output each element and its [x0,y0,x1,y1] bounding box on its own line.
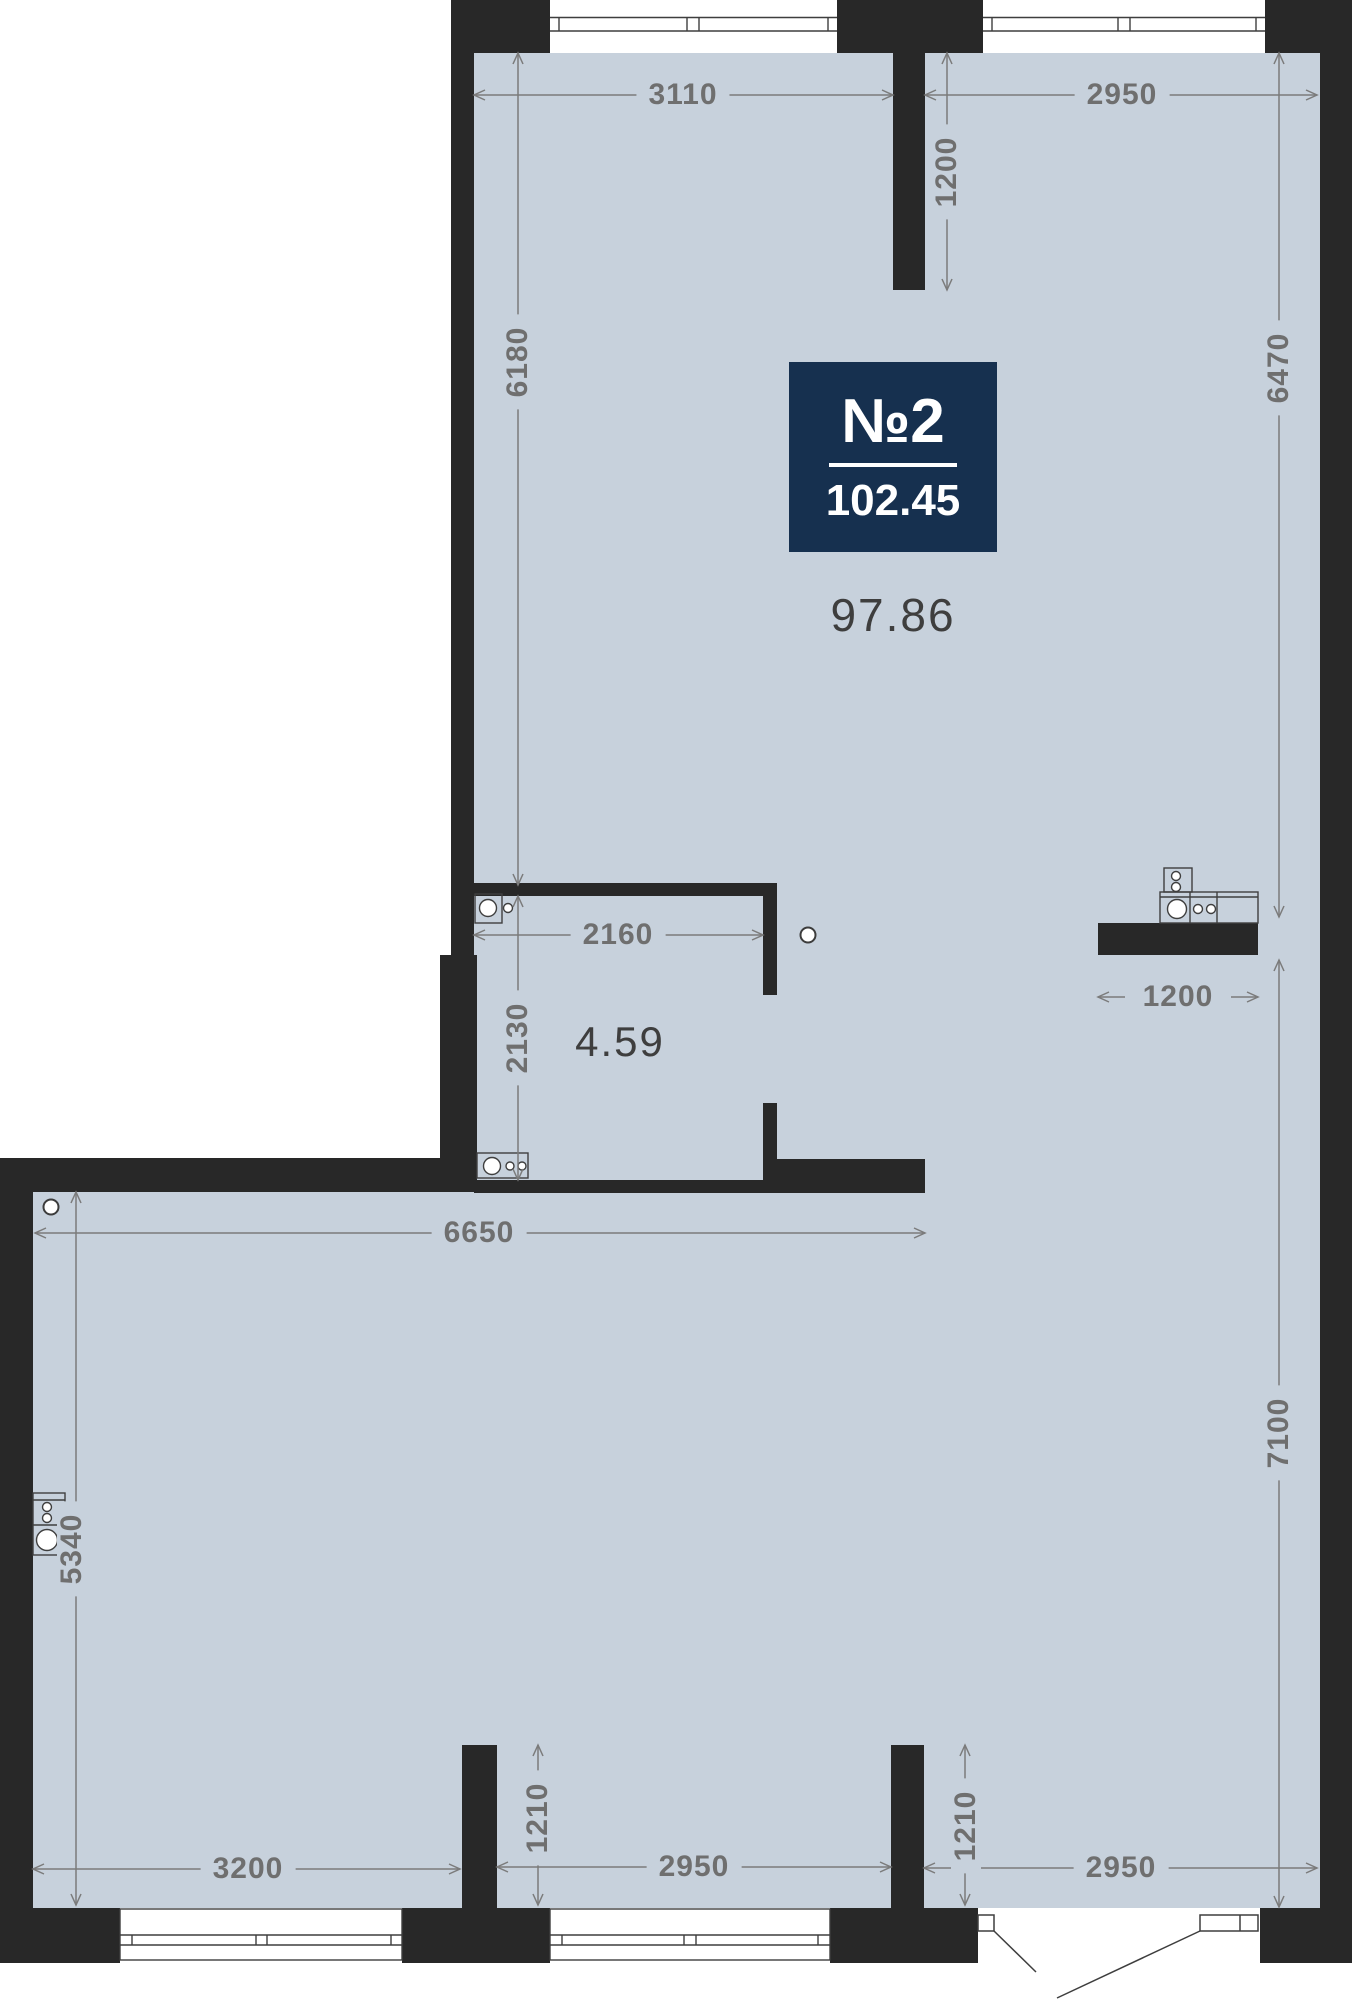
dim-hall-width: 2160 [571,920,666,950]
dim-hall-height: 2130 [503,991,533,1086]
dim-upper-right-height: 6470 [1264,321,1294,416]
unit-number: №2 [841,391,945,453]
dim-lower-left-height: 5340 [57,1502,87,1597]
hall-area-label: 4.59 [575,1021,665,1063]
dimension-lines [33,53,1317,1907]
main-room-area-label: 97.86 [830,592,955,638]
unit-total-area: 102.45 [826,479,961,523]
dim-top-niche-depth: 1200 [932,125,962,220]
kitchen-counter-icon [1160,868,1258,923]
dim-bottom-right-width: 2950 [1074,1853,1169,1883]
dim-upper-left-height: 6180 [503,315,533,410]
unit-badge: №2 102.45 [789,362,997,552]
window-top-right [983,18,1265,32]
dim-lower-right-height: 7100 [1264,1386,1294,1481]
dim-bottom-niche-left: 1210 [523,1771,553,1866]
dim-top-left-width: 3110 [636,80,729,110]
window-top-left [550,18,837,32]
dim-kitchen-counter-width: 1200 [1131,982,1226,1012]
dim-lower-top-width: 6650 [432,1218,527,1248]
hall-wc-icon [477,1153,528,1178]
utility-point-icons [44,928,816,1215]
hall-sink-icon [475,894,513,923]
dim-bottom-niche-right: 1210 [951,1779,981,1874]
window-bottom-middle [550,1909,830,1960]
window-bottom-left [120,1909,402,1960]
badge-divider [829,463,957,467]
dim-bottom-mid-width: 2950 [647,1852,742,1882]
dim-bottom-left-width: 3200 [201,1854,296,1884]
floor-plan: 3110 1200 2950 6180 6470 2160 2130 1200 … [0,0,1352,2000]
entrance-door-icon [978,1915,1258,1998]
dim-top-right-width: 2950 [1075,80,1170,110]
